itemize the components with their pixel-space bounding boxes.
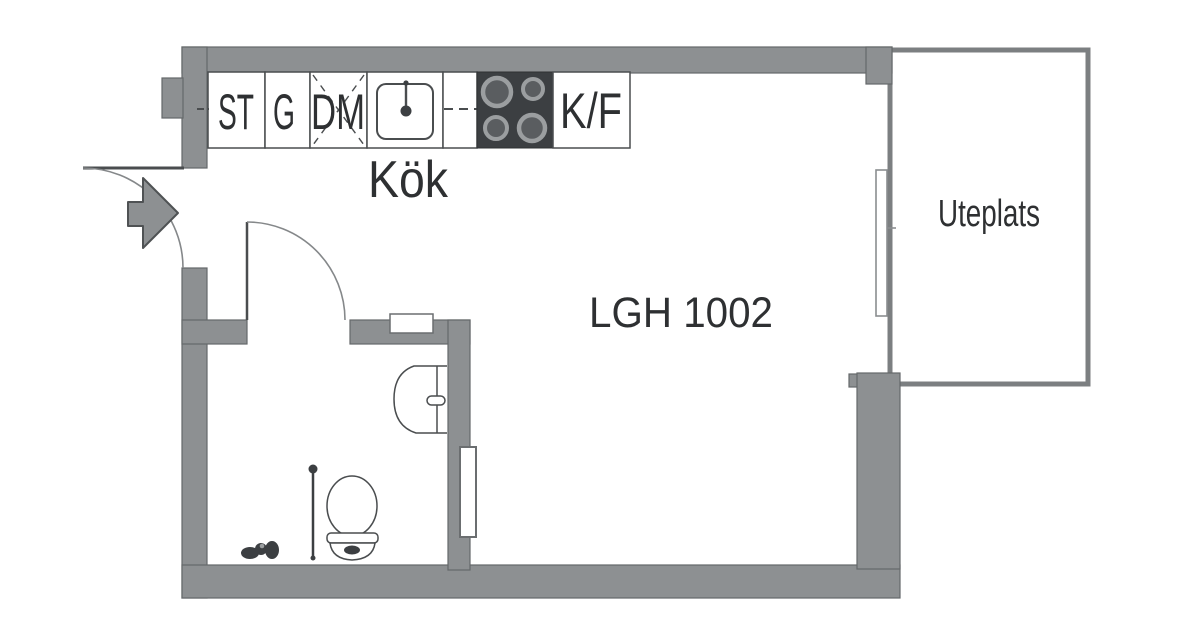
entrance	[83, 168, 184, 268]
stove	[477, 72, 553, 148]
left-wall-lower	[182, 268, 207, 598]
shoe	[265, 541, 279, 559]
kitchen: ST G DM K/F Kök	[197, 72, 630, 209]
cabinet-g-label: G	[273, 84, 295, 140]
radiator	[460, 447, 476, 537]
balcony-door-leaf	[876, 170, 887, 316]
patio: Uteplats	[890, 50, 1088, 384]
kitchen-label: Kök	[368, 151, 449, 209]
bottom-wall	[182, 565, 900, 598]
apartment-label: LGH 1002	[589, 289, 773, 337]
bathroom-faucet	[427, 396, 445, 405]
left-wall-pilaster	[162, 78, 183, 118]
patio-label: Uteplats	[938, 193, 1040, 235]
shoe-highlight	[260, 544, 265, 549]
right-wall-bottom	[857, 373, 900, 569]
cabinet-st-label: ST	[218, 84, 254, 140]
burner-icon	[523, 79, 543, 99]
kitchen-faucet-spout	[403, 80, 408, 85]
toilet-lid-detail	[344, 546, 360, 555]
bathroom-door-arc	[247, 222, 345, 320]
entrance-arrow-icon	[128, 178, 178, 248]
bathroom-sink	[394, 366, 447, 433]
right-wall-top-corner	[866, 47, 892, 84]
kitchen-faucet-knob	[401, 106, 412, 117]
shower-rail	[309, 465, 318, 561]
floor-plan: Uteplats	[0, 0, 1200, 621]
fridge-freezer-label: K/F	[560, 83, 622, 139]
burner-icon	[485, 117, 507, 139]
toilet-seat-band	[327, 533, 378, 543]
shoes-icon	[241, 541, 279, 559]
burner-icon	[519, 115, 545, 141]
top-wall	[182, 47, 892, 73]
left-wall-upper	[182, 47, 207, 168]
toilet	[327, 476, 378, 560]
bathroom-wall-left-stub	[182, 320, 247, 344]
bathroom	[241, 222, 447, 561]
shower-rail-base	[311, 556, 316, 561]
burner-icon	[483, 78, 511, 106]
wall-niche	[390, 314, 433, 333]
cabinet-dm-label: DM	[311, 84, 365, 140]
floor-plan-svg: Uteplats	[0, 0, 1200, 621]
toilet-bowl	[327, 476, 377, 536]
shower-rail-knob	[309, 465, 318, 474]
